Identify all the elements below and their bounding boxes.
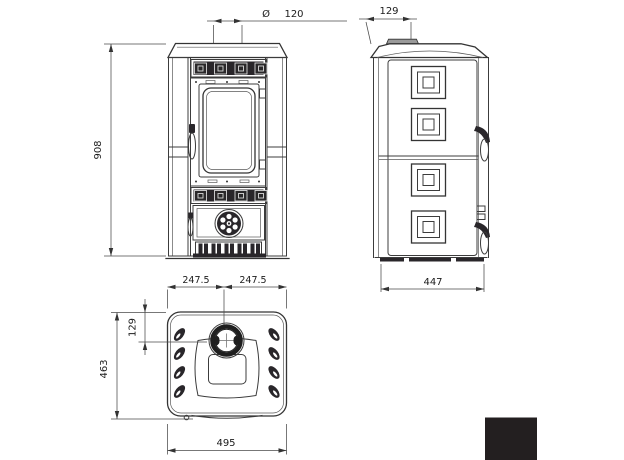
front-door-glass-frame: [199, 84, 259, 177]
technical-drawing-page: 908 Ø 120: [0, 0, 624, 460]
side-flue-offset-label: 129: [379, 6, 398, 17]
top-view: [168, 290, 287, 420]
dim-front-height: 908: [93, 44, 166, 256]
dim-top-width: 495: [168, 424, 287, 455]
side-depth-label: 447: [423, 277, 442, 288]
front-fire-door: [189, 78, 266, 186]
top-right-louvres: [266, 326, 282, 400]
front-view: [166, 44, 289, 259]
front-fan-knob: [215, 210, 243, 238]
front-door-handle: [189, 124, 196, 159]
front-top-cap: [168, 44, 287, 58]
dim-side-depth: 447: [381, 264, 484, 292]
stove-dimension-drawing: 908 Ø 120: [0, 0, 624, 460]
finish-color-swatch: [485, 418, 537, 460]
flue-diameter-value: 120: [284, 9, 303, 20]
front-top-vent-band: [191, 60, 267, 78]
side-door-handle-bottom: [474, 206, 490, 254]
side-view: [371, 39, 490, 261]
front-height-label: 908: [93, 140, 104, 159]
front-door-hinge-bottom: [260, 160, 266, 169]
side-base: [380, 258, 484, 262]
front-left-column: [169, 58, 189, 257]
front-base: [193, 254, 266, 258]
flue-diameter-symbol: Ø: [262, 8, 270, 20]
side-tile-medallions: [412, 67, 446, 244]
dim-top-depth: 463: [99, 313, 193, 420]
top-flue-collar: [209, 290, 244, 359]
side-flue-stub: [387, 39, 419, 44]
dim-side-flue-offset: 129: [359, 6, 417, 44]
top-left-louvres: [172, 326, 188, 400]
dim-top-flue-offset: 129: [111, 299, 207, 355]
top-half-width-left-label: 247.5: [182, 275, 209, 286]
dim-top-half-widths: 247.5 247.5: [168, 275, 287, 309]
front-lower-vent-band: [191, 188, 267, 204]
top-width-label: 495: [216, 438, 235, 449]
side-tile-panel: [388, 60, 477, 256]
top-depth-label: 463: [99, 359, 110, 378]
dim-flue-diameter: Ø 120: [207, 8, 347, 43]
top-half-width-right-label: 247.5: [239, 275, 266, 286]
front-bottom-grille: [196, 242, 262, 255]
front-ash-door: [188, 206, 265, 241]
front-door-hinge-top: [260, 89, 266, 98]
top-flue-offset-label: 129: [128, 318, 139, 337]
front-right-column: [267, 58, 287, 257]
